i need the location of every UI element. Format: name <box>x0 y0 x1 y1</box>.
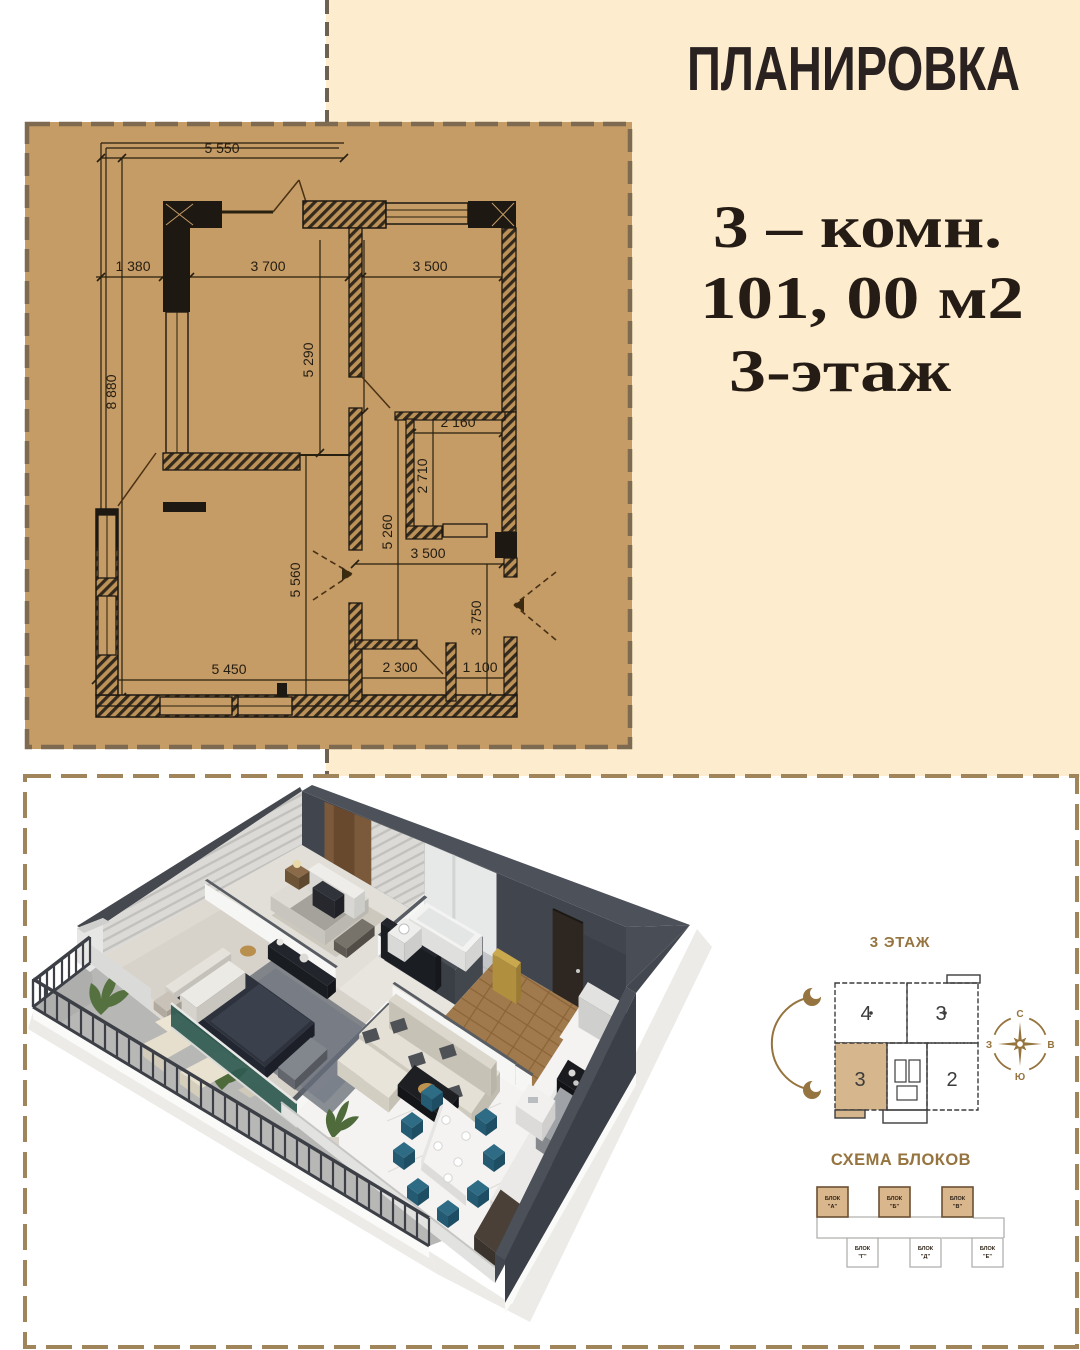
svg-text:3 – комн.: 3 – комн. <box>713 194 1002 260</box>
svg-text:3: 3 <box>854 1069 865 1091</box>
svg-text:"Б": "Б" <box>890 1204 900 1210</box>
svg-text:1 380: 1 380 <box>115 258 150 274</box>
svg-text:3 ЭТАЖ: 3 ЭТАЖ <box>870 934 931 951</box>
svg-text:"Г": "Г" <box>858 1254 867 1260</box>
svg-text:5 550: 5 550 <box>204 140 239 156</box>
svg-text:2 710: 2 710 <box>414 458 430 493</box>
svg-text:З: З <box>986 1040 992 1051</box>
svg-text:5 290: 5 290 <box>300 342 316 377</box>
svg-text:3-этаж: 3-этаж <box>729 338 952 404</box>
svg-text:1 100: 1 100 <box>462 659 497 675</box>
svg-text:"Д": "Д" <box>921 1254 931 1260</box>
svg-text:5 260: 5 260 <box>379 514 395 549</box>
svg-text:"Е": "Е" <box>983 1254 992 1260</box>
svg-text:3 750: 3 750 <box>468 600 484 635</box>
svg-text:СХЕМА БЛОКОВ: СХЕМА БЛОКОВ <box>831 1151 971 1169</box>
svg-text:БЛОК: БЛОК <box>980 1246 996 1252</box>
svg-text:БЛОК: БЛОК <box>918 1246 934 1252</box>
svg-text:8 880: 8 880 <box>103 374 119 409</box>
svg-text:БЛОК: БЛОК <box>855 1246 871 1252</box>
svg-text:2: 2 <box>946 1069 957 1091</box>
svg-text:5 560: 5 560 <box>287 562 303 597</box>
svg-text:2 300: 2 300 <box>382 659 417 675</box>
svg-text:В: В <box>1047 1040 1054 1051</box>
svg-text:101, 00 м2: 101, 00 м2 <box>700 265 1024 331</box>
svg-text:БЛОК: БЛОК <box>950 1196 966 1202</box>
svg-text:БЛОК: БЛОК <box>825 1196 841 1202</box>
svg-text:С: С <box>1016 1009 1023 1020</box>
svg-text:Ю: Ю <box>1015 1072 1025 1083</box>
svg-text:БЛОК: БЛОК <box>887 1196 903 1202</box>
svg-text:"А": "А" <box>828 1204 838 1210</box>
svg-text:ПЛАНИРОВКА: ПЛАНИРОВКА <box>687 35 1020 104</box>
svg-text:"В": "В" <box>953 1204 963 1210</box>
svg-text:5 450: 5 450 <box>211 661 246 677</box>
svg-text:3 500: 3 500 <box>410 545 445 561</box>
svg-text:3 700: 3 700 <box>250 258 285 274</box>
svg-text:3 500: 3 500 <box>412 258 447 274</box>
